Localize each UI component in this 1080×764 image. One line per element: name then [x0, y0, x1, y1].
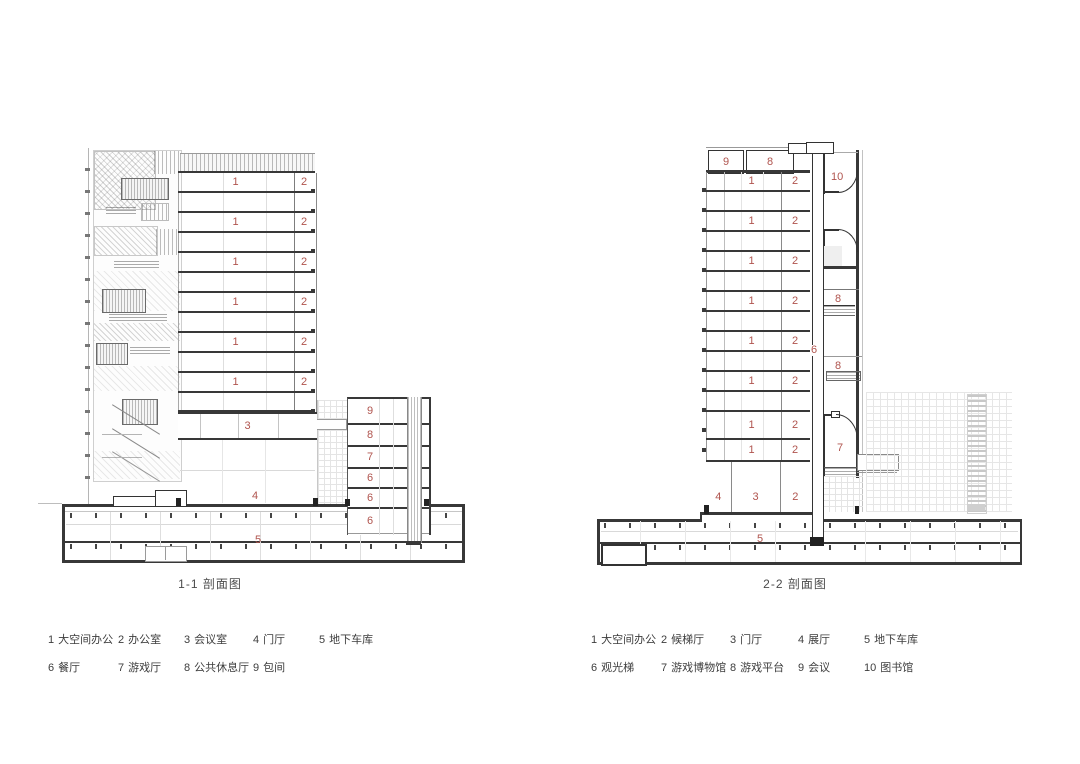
legend-number: 5	[319, 634, 325, 646]
room-label: 2	[792, 296, 798, 307]
drawing-title: 2-2 剖面图	[735, 575, 855, 592]
roof-parapet	[180, 153, 315, 172]
legend-text: 大空间办公	[58, 634, 113, 646]
basement-top-step	[700, 512, 822, 515]
core-cap	[806, 142, 834, 154]
tower-floor-labeled: 1 2	[706, 292, 810, 312]
legend-item: 8游戏平台	[730, 659, 798, 675]
room-label: 1	[748, 420, 754, 431]
annex-shaft	[407, 397, 422, 543]
room-label: 6	[810, 345, 818, 356]
legend-text: 大空间办公	[601, 634, 656, 646]
legend-item: 2办公室	[118, 631, 184, 647]
room-label: 3	[244, 421, 250, 432]
entry-step	[113, 496, 159, 507]
column-base	[313, 498, 318, 506]
library-room: 10	[823, 152, 858, 194]
tower-floor-labeled: 1 2	[178, 253, 315, 273]
pit-divider	[165, 546, 166, 560]
legend-text: 公共休息厅	[194, 662, 249, 674]
legend-text: 地下车库	[329, 634, 373, 646]
line	[823, 289, 859, 290]
legend-text: 图书馆	[880, 662, 913, 674]
room-label: 6	[348, 493, 392, 504]
room-label: 2	[301, 217, 307, 228]
room-label: 7	[837, 443, 843, 454]
room-label: 6	[348, 473, 392, 484]
column-line	[393, 399, 394, 535]
tower-floor-labeled: 1 2	[178, 173, 315, 193]
legend-text: 观光梯	[601, 662, 634, 674]
legend-number: 2	[118, 634, 124, 646]
room-label: 2	[792, 492, 798, 503]
grid-ticks	[85, 168, 90, 488]
room-label: 8	[348, 430, 392, 441]
tower-floor	[178, 193, 315, 213]
stair-landing	[316, 419, 347, 430]
basement-left-wall	[62, 504, 65, 563]
room-label: 2	[301, 377, 307, 388]
ground-line	[38, 503, 62, 504]
room-label: 2	[792, 256, 798, 267]
tower-floor-labeled: 1 2	[706, 212, 810, 232]
room-label: 2	[792, 445, 798, 456]
legend-number: 10	[864, 662, 876, 674]
tower-floor	[706, 392, 810, 412]
meeting-floor: 3	[178, 412, 317, 440]
column-line	[210, 512, 211, 560]
room-label: 7	[348, 452, 392, 463]
annex-shaft-base	[406, 541, 421, 545]
column-line	[238, 414, 239, 438]
room-label: 2	[792, 420, 798, 431]
tower-floor	[178, 393, 315, 412]
room-label: 10	[831, 172, 843, 183]
legend-item: 4门厅	[253, 631, 319, 647]
tower-floor-labeled: 1 2	[706, 252, 810, 272]
facade-detail	[154, 151, 180, 174]
legend-number: 3	[730, 634, 736, 646]
tower-floor-labeled: 1 2	[706, 412, 810, 440]
column-base	[704, 505, 709, 514]
legend-text: 会议	[808, 662, 830, 674]
column-line	[265, 440, 266, 503]
facade-detail	[141, 203, 169, 221]
tower-floor	[706, 312, 810, 332]
tower-floor-labeled: 1 2	[178, 373, 315, 393]
legend-text: 门厅	[263, 634, 285, 646]
legend-item: 4展厅	[798, 631, 864, 647]
legend-number: 6	[591, 662, 597, 674]
legend-item: 6餐厅	[48, 659, 118, 675]
legend-text: 地下车库	[874, 634, 918, 646]
room-label: 1	[232, 337, 238, 348]
entry-step	[155, 490, 187, 507]
facade-detail	[156, 229, 180, 255]
tower-floor	[706, 192, 810, 212]
legend-number: 6	[48, 662, 54, 674]
basement-top-slab	[597, 519, 702, 522]
tower-floor	[178, 353, 315, 373]
legend-item: 9包间	[253, 659, 319, 675]
mezzanine-line	[180, 470, 315, 471]
museum-room: 7	[823, 411, 859, 476]
room-label: 1	[748, 376, 754, 387]
column-ticks	[604, 545, 1014, 550]
louver-tab	[967, 504, 985, 511]
facade-detail	[102, 434, 142, 435]
legend-text: 门厅	[740, 634, 762, 646]
legend-text: 办公室	[128, 634, 161, 646]
room-label: 1	[748, 176, 754, 187]
room-label: 2	[792, 376, 798, 387]
legend-item: 10图书馆	[864, 659, 1021, 675]
platform-deck	[824, 305, 855, 316]
line	[823, 356, 862, 357]
tower-floor-labeled: 1 2	[178, 213, 315, 233]
curved-wall	[836, 414, 858, 440]
facade-detail	[94, 366, 180, 391]
tower-floor-labeled: 1 2	[706, 440, 810, 462]
basement-bottom	[597, 562, 1022, 565]
wall	[823, 191, 839, 193]
basement-bottom	[62, 560, 465, 563]
legend-item: 1大空间办公	[48, 631, 118, 647]
game-platform: 8	[823, 356, 862, 381]
tower-floor-labeled: 1 2	[706, 172, 810, 192]
room-label: 1	[232, 257, 238, 268]
legend-item: 2候梯厅	[661, 631, 730, 647]
tower-floor-labeled: 1 2	[178, 333, 315, 353]
legend-item: 7游戏博物馆	[661, 659, 730, 675]
column-line	[910, 521, 911, 562]
legend-number: 5	[864, 634, 870, 646]
room-label: 9	[348, 406, 392, 417]
room-label: 2	[301, 337, 307, 348]
tower-floor	[178, 233, 315, 253]
legend-text: 游戏厅	[128, 662, 161, 674]
legend-number: 3	[184, 634, 190, 646]
facade-elevation	[93, 150, 182, 482]
room-label: 6	[348, 516, 392, 527]
tower-floor	[178, 273, 315, 293]
column-ticks	[604, 523, 1014, 528]
legend-number: 9	[253, 662, 259, 674]
room-label: 2	[792, 176, 798, 187]
tower-floor-labeled: 1 2	[178, 293, 315, 313]
room-label: 2	[792, 216, 798, 227]
column-line	[110, 512, 111, 560]
room-label: 4	[252, 491, 258, 502]
room-label: 4	[715, 492, 721, 503]
pit-box	[601, 544, 647, 566]
facade-detail	[114, 261, 159, 268]
legend-text: 会议室	[194, 634, 227, 646]
column-base	[424, 499, 429, 506]
tower-floor	[706, 272, 810, 292]
legend-number: 7	[661, 662, 667, 674]
facade-window	[121, 178, 169, 200]
legend-number: 4	[253, 634, 259, 646]
column-line	[775, 521, 776, 562]
legend-number: 2	[661, 634, 667, 646]
legend-item: 3门厅	[730, 631, 798, 647]
room-label: 5	[757, 534, 763, 545]
tower-floor	[178, 313, 315, 333]
legend-text: 游戏博物馆	[671, 662, 726, 674]
floor-strip	[823, 467, 858, 476]
pit-box	[145, 546, 187, 562]
column-ticks	[70, 544, 458, 549]
column-base	[345, 499, 350, 506]
louver-band	[967, 394, 987, 514]
room-label: 1	[232, 377, 238, 388]
legend-number: 8	[184, 662, 190, 674]
drawing-title: 1-1 剖面图	[150, 575, 270, 592]
room-label: 2	[301, 177, 307, 188]
section-drawing-sheet: 1 2 1 2 1 2 1 2 1 2 1 2	[0, 0, 1080, 764]
roof-box	[788, 143, 808, 154]
legend-left: 1大空间办公 2办公室 3会议室 4门厅 5地下车库 6餐厅 7游戏厅 8公共休…	[48, 631, 468, 675]
room-label: 3	[752, 492, 758, 503]
room-label: 1	[232, 297, 238, 308]
facade-detail	[94, 451, 180, 479]
ground-floor: 4 3 2	[706, 462, 810, 512]
curtainwall-elevation	[866, 392, 1012, 512]
legend-number: 8	[730, 662, 736, 674]
room-label: 9	[723, 157, 729, 168]
room-label: 2	[301, 297, 307, 308]
column-base	[176, 498, 181, 506]
column-line	[730, 521, 731, 562]
room-label: 1	[232, 177, 238, 188]
curved-room	[823, 229, 858, 269]
room-label: 2	[301, 257, 307, 268]
facade-detail	[130, 347, 170, 356]
room-label: 2	[792, 336, 798, 347]
tower-floor-labeled: 1 2	[706, 332, 810, 352]
legend-number: 1	[591, 634, 597, 646]
core-base	[810, 537, 824, 546]
tower-floor-labeled: 1 2	[706, 372, 810, 392]
legend-item: 5地下车库	[864, 631, 1021, 647]
facade-detail	[94, 323, 180, 341]
legend-item: 3会议室	[184, 631, 253, 647]
legend-text: 餐厅	[58, 662, 80, 674]
basement-top-slab	[820, 519, 1022, 522]
legend-item: 5地下车库	[319, 631, 468, 647]
shading	[824, 246, 842, 266]
room-label: 1	[748, 336, 754, 347]
column-line	[685, 521, 686, 562]
legend-item: 9会议	[798, 659, 864, 675]
stair-shaft	[317, 400, 347, 505]
room-label: 1	[748, 256, 754, 267]
legend-item: 7游戏厅	[118, 659, 184, 675]
legend-item: 6观光梯	[591, 659, 661, 675]
column-line	[1000, 521, 1001, 562]
tower-floor	[706, 352, 810, 372]
basement-right-wall	[462, 504, 465, 563]
legend-text: 展厅	[808, 634, 830, 646]
parapet-line	[706, 147, 792, 148]
legend-item: 8公共休息厅	[184, 659, 253, 675]
basement-mid-slab	[62, 541, 465, 543]
facade-window	[102, 289, 146, 313]
column-line	[865, 521, 866, 562]
facade-detail	[109, 314, 167, 321]
platform-deck	[826, 371, 861, 381]
room-label: 1	[748, 216, 754, 227]
column-line	[200, 414, 201, 438]
legend-number: 9	[798, 662, 804, 674]
room-label: 1	[748, 445, 754, 456]
slab	[823, 266, 858, 269]
column-line	[222, 440, 223, 503]
column-line	[278, 414, 279, 438]
facade-detail	[94, 226, 158, 256]
column-line	[379, 399, 380, 535]
column-line	[955, 521, 956, 562]
tower-floor	[706, 232, 810, 252]
room-label: 8	[767, 157, 773, 168]
room-label: 8	[835, 294, 841, 305]
legend-text: 候梯厅	[671, 634, 704, 646]
room-label: 5	[255, 535, 261, 546]
wall	[823, 229, 839, 231]
facade-window	[96, 343, 128, 365]
column-line	[310, 512, 311, 560]
legend-number: 7	[118, 662, 124, 674]
legend-item: 1大空间办公	[591, 631, 661, 647]
legend-number: 1	[48, 634, 54, 646]
legend-text: 包间	[263, 662, 285, 674]
legend-number: 4	[798, 634, 804, 646]
facade-detail	[106, 207, 136, 214]
room-label: 1	[748, 296, 754, 307]
room-label: 1	[232, 217, 238, 228]
game-platform: 8	[823, 289, 859, 315]
legend-text: 游戏平台	[740, 662, 784, 674]
legend-right: 1大空间办公 2候梯厅 3门厅 4展厅 5地下车库 6观光梯 7游戏博物馆 8游…	[591, 631, 1021, 675]
column-base	[855, 506, 859, 514]
